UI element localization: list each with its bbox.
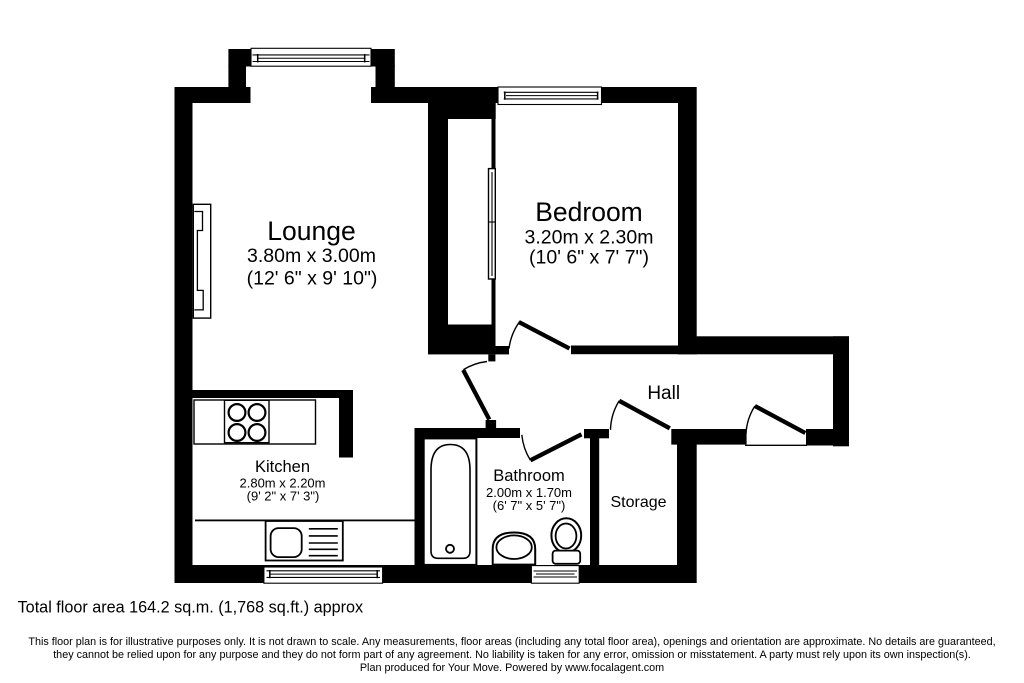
svg-text:Storage: Storage: [610, 494, 666, 511]
svg-text:Bathroom: Bathroom: [493, 467, 565, 485]
svg-text:Kitchen: Kitchen: [255, 458, 310, 476]
svg-text:(12' 6" x 9' 10"): (12' 6" x 9' 10"): [247, 268, 378, 290]
svg-text:Plan produced for Your Move. P: Plan produced for Your Move. Powered by …: [360, 662, 664, 674]
svg-text:they cannot be relied upon for: they cannot be relied upon for any purpo…: [53, 649, 971, 661]
svg-text:3.20m x 2.30m: 3.20m x 2.30m: [525, 227, 654, 249]
svg-text:(9' 2" x 7' 3"): (9' 2" x 7' 3"): [247, 489, 320, 504]
svg-text:Hall: Hall: [647, 383, 680, 404]
svg-text:(10' 6" x 7' 7"): (10' 6" x 7' 7"): [529, 247, 649, 269]
svg-text:Lounge: Lounge: [267, 216, 355, 246]
svg-text:Total floor area 164.2 sq.m. (: Total floor area 164.2 sq.m. (1,768 sq.f…: [18, 599, 364, 617]
svg-text:Bedroom: Bedroom: [535, 197, 643, 227]
svg-text:3.80m x 3.00m: 3.80m x 3.00m: [247, 245, 376, 267]
svg-text:This floor plan is for illustr: This floor plan is for illustrative purp…: [28, 636, 995, 648]
svg-text:(6' 7" x 5' 7"): (6' 7" x 5' 7"): [493, 498, 566, 513]
